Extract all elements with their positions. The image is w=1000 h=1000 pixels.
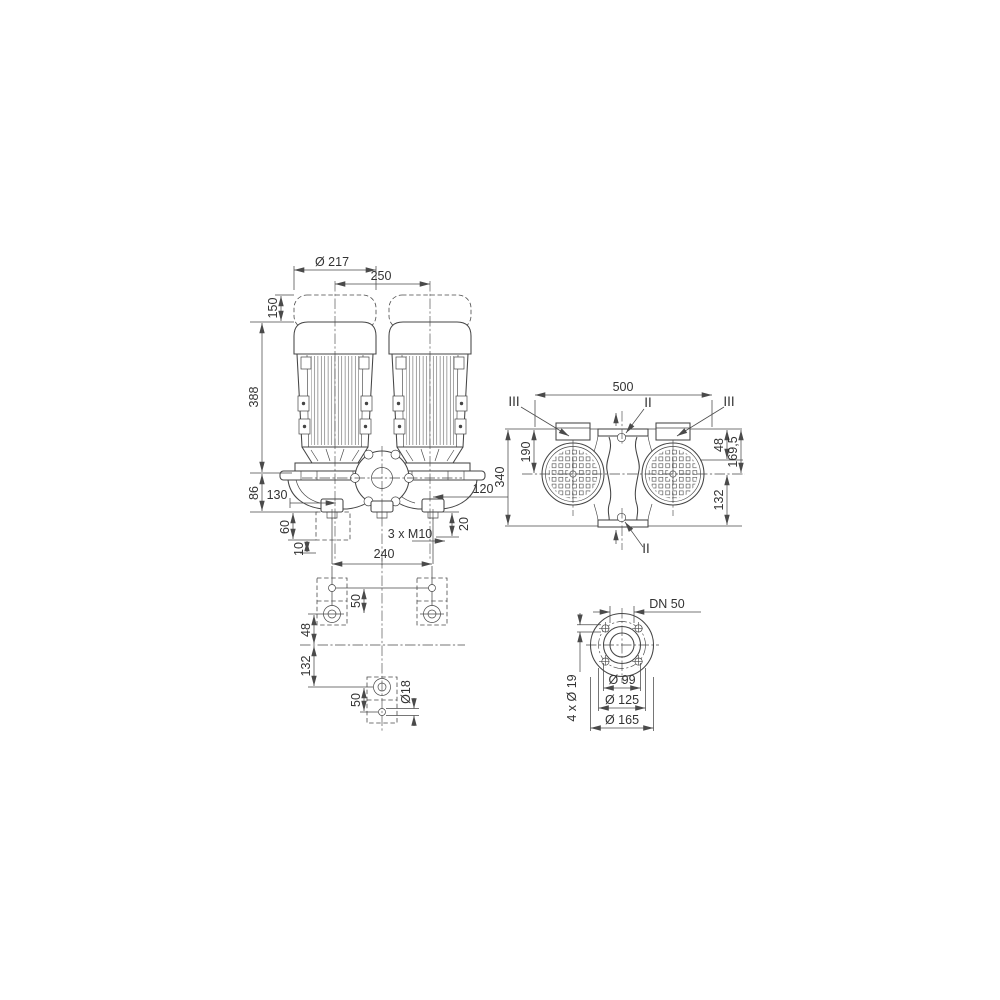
dim-hub-diameter: Ø 99 xyxy=(608,673,635,687)
dim-nominal-diameter: DN 50 xyxy=(649,597,684,611)
dim-overall-depth: 340 xyxy=(493,467,507,488)
dim-thread-spec: 3 x M10 xyxy=(388,527,433,541)
dim-box-depth: 48 xyxy=(712,438,726,452)
dim-foundation-height: 60 xyxy=(278,520,292,534)
flange-view: DN 50 4 x Ø 19 Ø 99 Ø 125 Ø 165 xyxy=(565,597,701,731)
dim-foot-hole-offset: 20 xyxy=(457,517,471,531)
dim-center-offset: 48 xyxy=(299,623,313,637)
technical-drawing-page: Ø 217 250 150 388 86 130 120 60 10 20 3 … xyxy=(0,0,1000,1000)
foundation-centerlines xyxy=(300,558,465,732)
pump-feet xyxy=(321,499,444,518)
dim-bolt-spacing: 240 xyxy=(374,547,395,561)
dim-base-height: 86 xyxy=(247,486,261,500)
dim-bolt-holes: 4 x Ø 19 xyxy=(565,674,579,721)
dim-plate-thickness: 10 xyxy=(292,542,306,556)
dim-axis-spacing: 250 xyxy=(371,269,392,283)
dim-rear-depth: 132 xyxy=(712,490,726,511)
top-dimensions: 500 340 190 48 169,5 132 xyxy=(493,380,743,525)
foundation-dimensions: 240 50 48 132 50 Ø18 xyxy=(299,547,432,726)
dim-rear-offset: 132 xyxy=(299,656,313,677)
top-view: 500 340 190 48 169,5 132 III III II II xyxy=(493,380,745,556)
dim-hole-pitch-rear: 50 xyxy=(349,693,363,707)
section-label-right: III xyxy=(723,394,734,409)
foundation-view: 240 50 48 132 50 Ø18 xyxy=(299,547,465,732)
front-view: Ø 217 250 150 388 86 130 120 60 10 20 3 … xyxy=(247,255,508,565)
front-dimensions: Ø 217 250 150 388 86 130 120 60 10 20 3 … xyxy=(247,255,508,564)
top-edge-lines xyxy=(505,429,742,526)
section-label-left: III xyxy=(508,394,519,409)
dim-flange-depth: 169,5 xyxy=(726,436,740,467)
dim-motor-height: 388 xyxy=(247,387,261,408)
pump-dimension-drawing: Ø 217 250 150 388 86 130 120 60 10 20 3 … xyxy=(0,0,1000,1000)
dim-overall-length: 500 xyxy=(613,380,634,394)
dim-hole-pitch-front: 50 xyxy=(349,594,363,608)
port-flanges xyxy=(598,429,648,527)
dim-foot-offset-right: 120 xyxy=(473,482,494,496)
dim-outer-diameter: Ø 165 xyxy=(605,713,639,727)
dim-bolt-circle: Ø 125 xyxy=(605,693,639,707)
dim-front-depth: 190 xyxy=(519,442,533,463)
foundation-block-dashed xyxy=(316,512,350,540)
section-label-top: II xyxy=(644,395,652,410)
dim-motor-diameter: Ø 217 xyxy=(315,255,349,269)
section-label-bottom: II xyxy=(642,541,650,556)
dim-hole-diameter: Ø18 xyxy=(399,680,413,704)
dim-foot-offset-left: 130 xyxy=(267,488,288,502)
dim-hood-clearance: 150 xyxy=(266,298,280,319)
